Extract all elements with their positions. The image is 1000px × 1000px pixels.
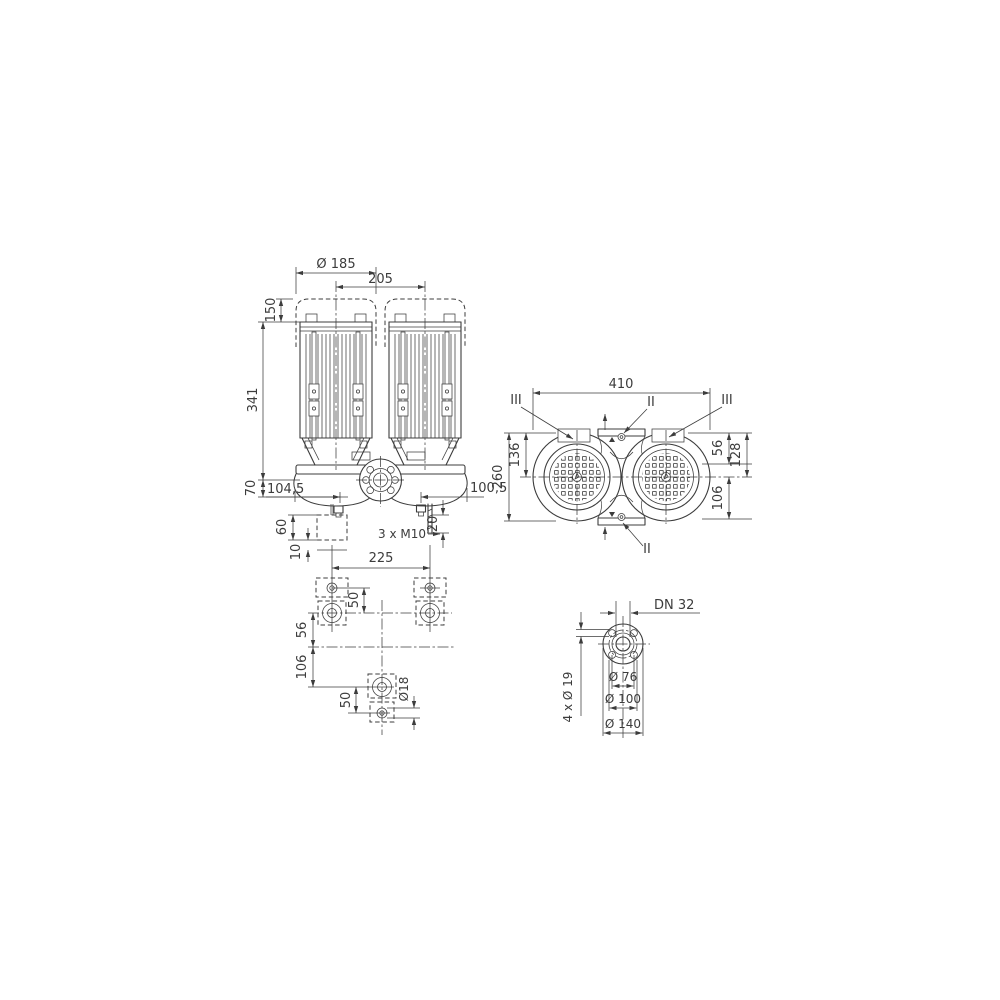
label-section-iii-left: III — [510, 393, 522, 408]
dim-overall-depth: 260 — [491, 465, 506, 490]
dim-axis-to-edge: 106 — [711, 486, 726, 511]
foundation-plan-view: 225 50 56 106 50 Ø18 — [295, 545, 455, 735]
dim-hole-diameter: Ø18 — [397, 677, 411, 702]
dim-edge-to-port: 56 — [711, 440, 726, 457]
foundation-dimensions: 225 50 56 106 50 Ø18 — [295, 551, 430, 730]
dim-axis-to-base: 70 — [244, 480, 259, 497]
pump-dimensional-drawing: Ø 185 205 150 341 70 104,5 100,5 — [0, 0, 1000, 1000]
drawing-canvas: Ø 185 205 150 341 70 104,5 100,5 — [0, 0, 1000, 1000]
bolt-group-top-right — [414, 545, 446, 632]
dim-block-height: 60 — [275, 519, 290, 536]
dim-outer-diameter: Ø 140 — [605, 717, 641, 731]
dim-grout-height: 10 — [289, 544, 304, 561]
dim-pair-pitch-top: 50 — [347, 592, 362, 609]
dim-bolt-holes: 4 x Ø 19 — [561, 672, 575, 723]
top-plan-view: 410 260 136 56 128 106 III III II II — [491, 377, 752, 557]
bolt-group-top-left — [316, 545, 370, 632]
dim-offset-left: 104,5 — [267, 482, 304, 497]
dim-motor-diameter: Ø 185 — [316, 257, 355, 272]
dim-front-to-axis: 136 — [508, 443, 523, 468]
top-dimensions: 410 260 136 56 128 106 — [491, 377, 752, 521]
label-stud-thread: 3 x M10 — [378, 527, 426, 541]
label-section-ii-top: II — [647, 395, 655, 410]
front-dimensions: Ø 185 205 150 341 70 104,5 100,5 — [244, 257, 507, 562]
dim-stud-length: 20 — [426, 516, 441, 533]
dim-motor-height: 341 — [246, 388, 261, 413]
dim-overall-width: 410 — [609, 377, 634, 392]
front-elevation-view: Ø 185 205 150 341 70 104,5 100,5 — [244, 257, 507, 562]
dim-bolt-circle: Ø 100 — [605, 692, 641, 706]
dim-nominal-bore: DN 32 — [654, 598, 694, 613]
dim-cap-height: 150 — [264, 298, 279, 323]
dim-pair-pitch-bottom: 50 — [339, 692, 354, 709]
dim-axis-bottom: 106 — [295, 655, 310, 680]
dim-bolt-span: 225 — [369, 551, 394, 566]
dim-edge-to-axis: 128 — [729, 443, 744, 468]
pipe-flange-bottom — [598, 512, 645, 540]
flange-detail-view: DN 32 4 x Ø 19 Ø 76 Ø 100 Ø 140 — [561, 598, 700, 738]
dim-head-pitch: 205 — [368, 272, 393, 287]
label-section-ii-bottom: II — [643, 542, 651, 557]
bolt-group-bottom — [348, 674, 396, 722]
label-section-iii-right: III — [721, 393, 733, 408]
dim-raised-face: Ø 76 — [609, 670, 638, 684]
flange-dimensions: DN 32 4 x Ø 19 Ø 76 Ø 100 Ø 140 — [561, 598, 700, 736]
foundation-centerlines — [308, 600, 455, 735]
dim-axis-top: 56 — [295, 622, 310, 639]
